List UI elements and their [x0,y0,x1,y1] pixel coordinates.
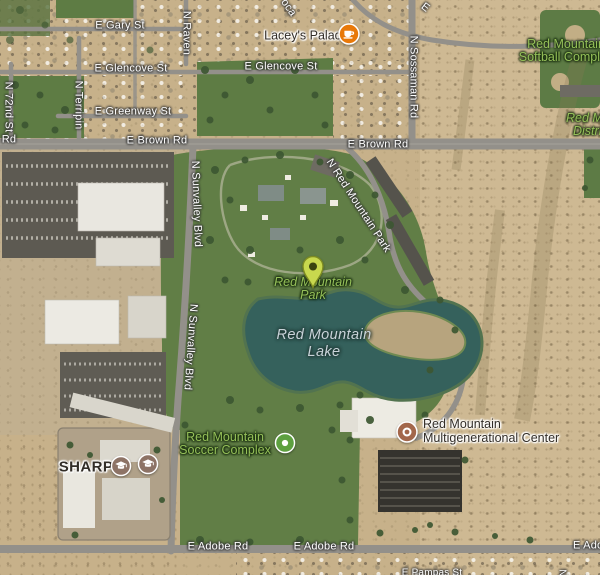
school-icon[interactable] [110,455,132,477]
road-label-n-sossaman-rd: N Sossaman Rd [407,36,420,119]
cafe-icon[interactable] [338,23,361,46]
park-label-red-mountain-park[interactable]: Red Mountain Park [274,276,352,302]
trees-layer [6,6,594,546]
park-label-line: Softball Complex [519,51,600,64]
road-label-e-brown-rd-west: E Brown Rd [127,135,188,148]
park-label-line: Red Mountain [566,112,600,125]
poi-label-line: Red Mountain [423,417,559,431]
commercial-zone-tint [0,145,192,435]
road-label-e-adobe-rd-fragment: E Adobe Rd [573,540,600,553]
road-label-bottom-n-fragment: N [556,569,569,575]
residential-texture [333,60,413,144]
park-label-line: Park [274,289,352,302]
poi-label-line: Multigenerational Center [423,431,559,445]
satellite-map[interactable]: E Gary St E Glencove St E Glencove St E … [0,0,600,575]
road-label-e-brown-rd-east: E Brown Rd [348,139,409,152]
school-icon[interactable] [137,453,159,475]
buildings-layer [2,85,600,540]
park-label-line: Red Mountain [274,276,352,289]
desert-zone-tint [420,0,600,575]
road-label-e-adobe-rd-west: E Adobe Rd [188,541,249,554]
residential-texture [236,553,600,575]
road-label-n-72nd-st: N 72nd St [2,82,15,133]
road-label-oca-fragment: oca [277,0,298,19]
park-details [221,154,382,273]
water-label-line: Lake [276,344,371,361]
road-label-n-raven: N Raven [180,11,193,55]
residential-texture [0,0,414,76]
water-layer [244,290,482,401]
roads-layer [0,0,600,551]
road-label-n-terripin: N Terripin [72,81,85,130]
poi-label-laceys-palace[interactable]: Lacey's Palace [264,30,348,43]
road-label-n-red-mountain-park: N Red Mountain Park [323,157,393,255]
desert-speckle [0,0,600,575]
road-label-e-glencove-st-east: E Glencove St [245,61,318,74]
poi-icon[interactable] [396,421,419,444]
road-label-e-fragment: E [418,1,432,16]
park-label-line: Red Mountain [519,38,600,51]
poi-label-multigenerational-center[interactable]: Red Mountain Multigenerational Center [423,417,559,445]
park-label-soccer-complex[interactable]: Red Mountain Soccer Complex [179,431,271,457]
grass-areas [0,0,600,546]
residential-texture [0,76,196,144]
road-label-e-glencove-st-west: E Glencove St [95,63,168,76]
poi-label-sharp[interactable]: SHARP [59,461,114,474]
road-label-e-greenway-st: E Greenway St [95,106,172,119]
map-pin[interactable] [300,255,326,289]
road-label-n-sunvalley-blvd-south: N Sunvalley Blvd [181,303,200,390]
park-label-line: Red Mountain [179,431,271,444]
park-label-district[interactable]: Red Mountain District [566,112,600,138]
road-label-bottom-street-fragment: E Pampas St [402,567,463,575]
desert-speckle [0,440,180,575]
water-label-line: Red Mountain [276,327,371,344]
road-label-e-adobe-rd-mid: E Adobe Rd [294,541,355,554]
park-label-line: District [573,125,600,138]
desert-speckle [415,0,600,575]
park-icon[interactable] [274,432,296,454]
road-label-rd-fragment: Rd [2,134,16,147]
road-label-e-gary-st: E Gary St [95,20,144,33]
water-label-red-mountain-lake[interactable]: Red Mountain Lake [276,327,371,361]
park-label-softball-complex[interactable]: Red Mountain Softball Complex [519,38,600,64]
road-label-n-sunvalley-blvd-north: N Sunvalley Blvd [188,161,204,248]
park-label-line: Soccer Complex [179,444,271,457]
terrain-layer [0,0,600,575]
wash-bands [456,40,585,420]
